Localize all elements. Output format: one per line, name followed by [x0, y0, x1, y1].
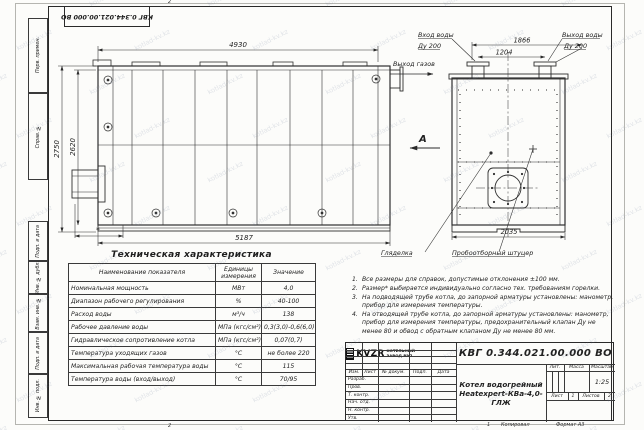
tb-row-utv: Утв.	[346, 414, 378, 422]
end-view-dimensions: 1866 1204 2035	[452, 37, 582, 241]
dim-1866: 1866	[514, 37, 531, 45]
tb-sheets-label: Листов	[578, 392, 604, 400]
end-view-labels: Вход воды Ду 200 Выход воды Ду 200 Выход…	[381, 31, 603, 257]
spec-row: Максимальная рабочая температура воды°С1…	[69, 360, 316, 373]
gas-outlet-stub	[390, 67, 403, 91]
spec-row: Гидравлическое сопротивление котлаМПа (к…	[69, 334, 316, 347]
top-left-fitting	[93, 60, 111, 66]
tb-row-nkontr: Н. контр.	[346, 407, 378, 415]
tb-col-izm: Изм.	[346, 369, 362, 376]
tb-mass-label: Масса	[564, 364, 589, 371]
tb-col-podp: Подп.	[409, 369, 431, 376]
margin-box-inv-podl: Инв. № подл.	[28, 374, 48, 418]
tb-row-razrab: Разраб.	[346, 376, 378, 384]
tb-row-nachotd: Нач. отд.	[346, 399, 378, 407]
water-in-dn-label: Ду 200	[417, 42, 441, 50]
tb-col-list: Лист	[362, 369, 378, 376]
gas-out-label: Выход газов	[393, 60, 435, 68]
margin-box-sprav-no: Справ. №	[28, 93, 48, 180]
spec-header-row: Наименование показателя Единицы измерени…	[69, 264, 316, 282]
tb-scale-label: Масштаб	[589, 364, 615, 371]
dim-2750: 2750	[53, 140, 61, 158]
spec-row: Температура воды (вход/выход)°С70/95	[69, 373, 316, 386]
kvzr-logo-subtitle: КОТЕЛЬНЫЙ ЗАВОД РЭП	[386, 349, 415, 358]
fold-mark-bottom: 2	[168, 423, 171, 429]
note-2: 2.Размер* выбирается индивидуально согла…	[352, 285, 615, 293]
tb-col-data: Дата	[431, 369, 456, 376]
main-view-dimensions: 4930 2750 2620 * 5187	[53, 41, 390, 246]
tb-row-tkontr: Т. контр.	[346, 391, 378, 399]
notes-list: 1.Все размеры для справок, допустимые от…	[352, 276, 615, 337]
end-view	[449, 52, 568, 238]
water-out-dn-label: Ду 200	[563, 42, 587, 50]
spec-row: Температура уходящих газов°Сне более 220	[69, 347, 316, 360]
drawing-sheet: КВГ 0.344.021.00.000 ВО 2 2 1 Копировал …	[0, 0, 644, 430]
title-block: Изм. Лист № докум. Подп. Дата Разраб. Пр…	[345, 342, 614, 421]
margin-box-podp-data-2: Подп. и дата	[28, 332, 48, 374]
fitting-circles	[104, 75, 380, 217]
note-4: 4.На отводящей трубе котла, до запорной …	[352, 311, 615, 335]
tb-lit-label: Лит.	[546, 364, 564, 371]
dim-5187: 5187	[235, 234, 253, 242]
dim-4930: 4930	[229, 41, 247, 49]
margin-box-vzam-inv: Взам. инв. №	[28, 294, 48, 332]
spec-row: Диапазон рабочего регулирования%40-100	[69, 295, 316, 308]
spec-row: Номинальная мощностьМВт4,0	[69, 282, 316, 295]
boiler-views-canvas: 4930 2750 2620 * 5187	[48, 4, 614, 260]
margin-box-podp-data-1: Подп. и дата	[28, 221, 48, 261]
water-inlet-pipe	[467, 62, 489, 78]
main-side-view	[72, 60, 403, 231]
dim-2620: 2620	[69, 138, 77, 156]
copied-label: Копировал	[501, 422, 530, 428]
dim-2035: 2035	[501, 228, 518, 236]
water-outlet-pipe	[534, 62, 556, 78]
sampling-label: Пробоотборный штуцер	[452, 249, 533, 257]
note-3: 3.На подводящей трубе котла, до запорной…	[352, 294, 615, 310]
tb-product-name: Котел водогрейный Heatexpert-КВа-4,0-ГЛЖ	[456, 364, 546, 422]
tb-sheet-value: 1	[568, 392, 578, 400]
tb-scale-value: 1:25	[589, 371, 615, 392]
tb-doc-number: КВГ 0.344.021.00.000 ВО	[456, 343, 615, 364]
kvzr-logo-text: KVZR	[356, 349, 384, 359]
copy-mark: 1	[487, 422, 490, 428]
view-a-letter: А	[418, 134, 427, 145]
dim-1204: 1204	[496, 49, 513, 57]
margin-box-perv-primen: Перв. примен.	[28, 18, 48, 93]
tb-col-dokum: № докум.	[378, 369, 409, 376]
spec-table-title: Техническая характеристика	[68, 250, 315, 260]
water-in-label: Вход воды	[418, 31, 454, 39]
water-out-label: Выход воды	[562, 31, 603, 39]
burner-flange	[72, 166, 105, 202]
spec-table: Техническая характеристика Наименование …	[68, 250, 315, 386]
format-label: Формат А3	[556, 422, 584, 428]
spec-row: Рабочее давление водыМПа (кгс/см²)0,3(3,…	[69, 321, 316, 334]
spec-row: Расход водым³/ч138	[69, 308, 316, 321]
note-1: 1.Все размеры для справок, допустимые от…	[352, 276, 615, 284]
tb-sheet-label: Лист	[546, 392, 568, 400]
margin-box-inv-dubl: Инв. № дубл.	[28, 261, 48, 294]
sight-glass-label: Гляделка	[381, 249, 413, 257]
tb-sheets-value: 2	[604, 392, 615, 400]
tb-row-prov: Пров.	[346, 384, 378, 392]
